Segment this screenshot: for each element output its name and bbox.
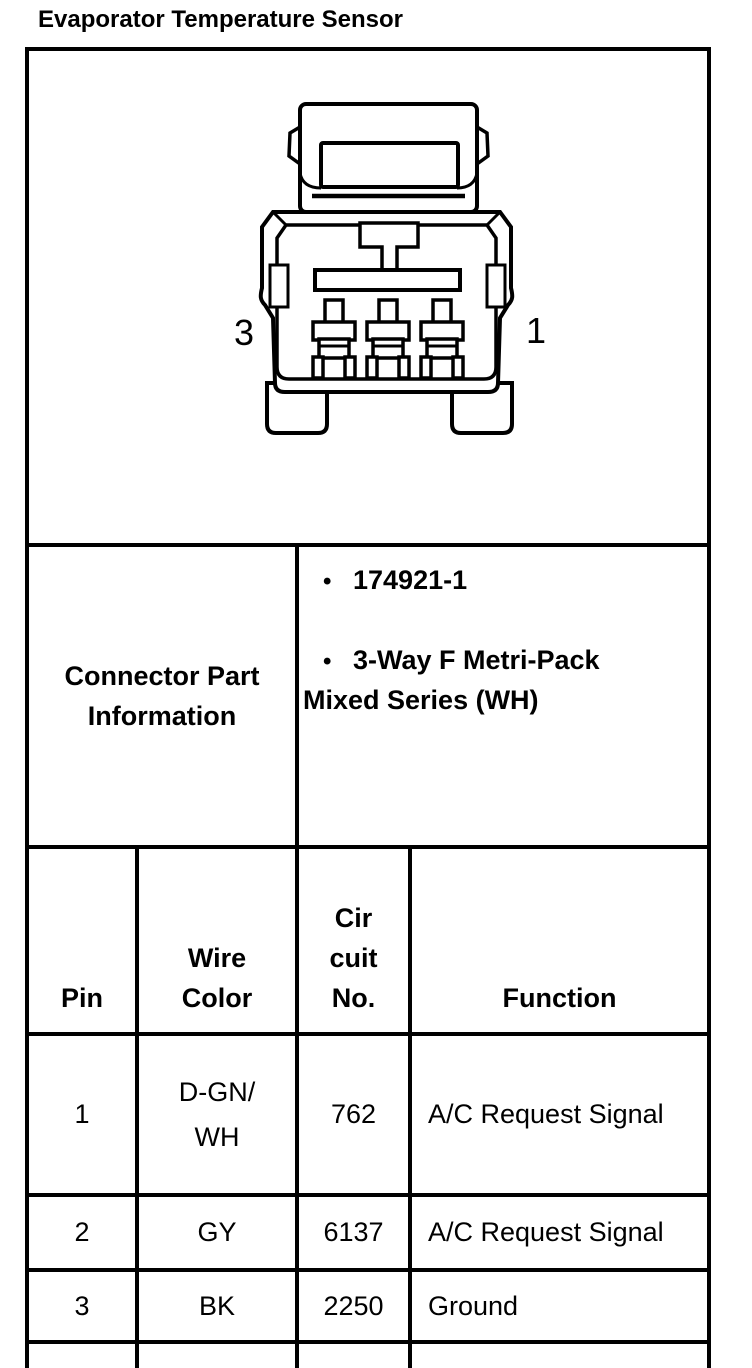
index-slot [315, 270, 460, 290]
header-row: Pin Wire Color Cir cuit No. Function [29, 845, 707, 1032]
cell-circuit-no: 2250 [299, 1272, 412, 1340]
bullet-icon: • [313, 643, 353, 681]
header-wire-color: Wire Color [139, 849, 299, 1032]
rear-window [321, 143, 458, 187]
diagram-row: 3 1 [29, 51, 707, 543]
table-row: 3 BK 2250 Ground [29, 1268, 707, 1340]
bullet-icon: • [313, 563, 353, 601]
part-info-label: Connector Part Information [29, 547, 299, 845]
header-function: Function [412, 849, 707, 1032]
cell-function: A/C Request Signal [412, 1197, 707, 1268]
wall-notch-right [487, 265, 505, 307]
part-info-row: Connector Part Information •174921-1 •3-… [29, 543, 707, 845]
header-pin: Pin [29, 849, 139, 1032]
part-series-item: •3-Way F Metri-Pack Mixed Series (WH) [303, 641, 699, 719]
table-row: 2 GY 6137 A/C Request Signal [29, 1193, 707, 1268]
pin-number-right: 1 [526, 310, 545, 351]
connector-table: 3 1 Connector Part Information •174921-1… [25, 47, 711, 1368]
pin-number-left: 3 [234, 312, 254, 353]
connector-diagram: 3 1 [230, 95, 545, 450]
cell-wire-color: GY [139, 1197, 299, 1268]
cell-circuit-no: 6137 [299, 1197, 412, 1268]
cell-wire-color: D-GN/ WH [139, 1036, 299, 1193]
page-title: Evaporator Temperature Sensor [38, 7, 403, 33]
wall-notch-left [270, 265, 288, 307]
cell-pin: 1 [29, 1036, 139, 1193]
header-circuit-no: Cir cuit No. [299, 849, 412, 1032]
cell-wire-color: BK [139, 1272, 299, 1340]
cell-circuit-no: 762 [299, 1036, 412, 1193]
table-row: 1 D-GN/ WH 762 A/C Request Signal [29, 1032, 707, 1193]
cell-pin: 3 [29, 1272, 139, 1340]
cell-function: Ground [412, 1272, 707, 1340]
part-number: 174921-1 [353, 565, 467, 595]
cell-pin: 2 [29, 1197, 139, 1268]
part-number-item: •174921-1 [303, 561, 699, 601]
cell-function: A/C Request Signal [412, 1036, 707, 1193]
part-info-details: •174921-1 •3-Way F Metri-Pack Mixed Seri… [299, 547, 707, 845]
